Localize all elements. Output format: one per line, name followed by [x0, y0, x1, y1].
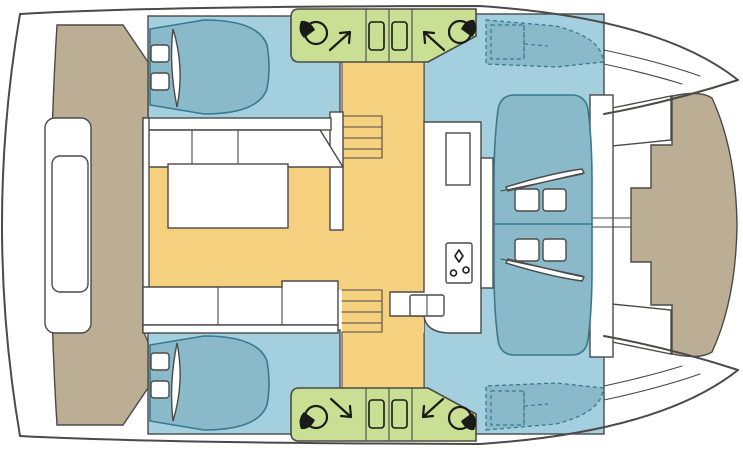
pillow [151, 73, 169, 90]
pillow [543, 189, 566, 211]
foredeck-right [612, 93, 737, 356]
pillow [515, 189, 539, 211]
aft-deck-left [45, 25, 148, 425]
galley-locker [446, 133, 470, 185]
floor-plan-drawing [0, 0, 743, 450]
pillow [543, 239, 566, 261]
catamaran-floor-plan [0, 0, 743, 450]
stove-icon [446, 243, 472, 283]
berth-bottom-left [150, 336, 269, 430]
pillow [151, 353, 169, 370]
double-sink-icon [410, 295, 444, 316]
saloon-table [168, 164, 288, 228]
berths-right-double [494, 95, 592, 355]
corridor-wall-strip [330, 112, 343, 230]
side-deck-strip [590, 95, 613, 357]
sofa-top-back [143, 118, 331, 130]
stove-body [446, 243, 472, 283]
mattress-double [494, 95, 592, 355]
aft-bench-inner [52, 156, 88, 292]
mattress [150, 20, 269, 114]
berth-side-shelf [481, 158, 493, 288]
sofa-bottom-back [143, 325, 338, 333]
sofa-bottom-seats [143, 281, 338, 325]
pillow [515, 239, 539, 261]
pillow [151, 381, 169, 398]
pillow [151, 45, 169, 62]
sofa-top-seats [143, 130, 343, 167]
corridor-floor [342, 62, 424, 388]
berth-top-left [150, 20, 269, 114]
